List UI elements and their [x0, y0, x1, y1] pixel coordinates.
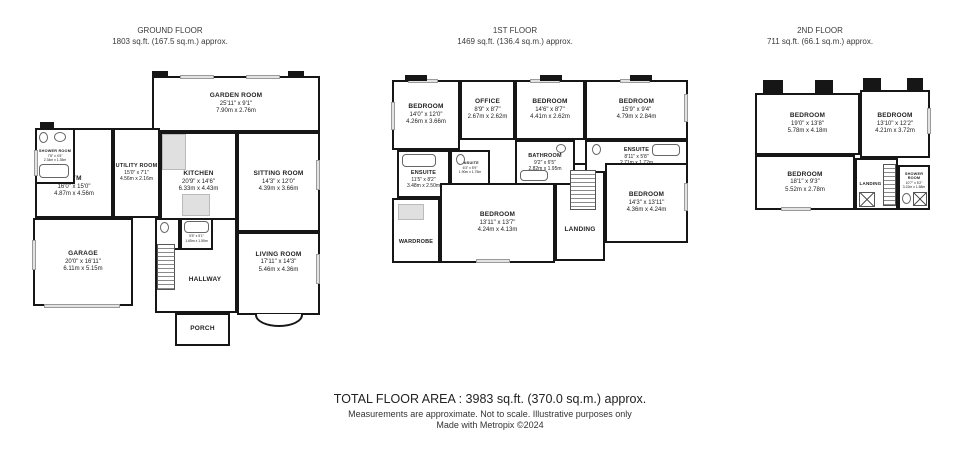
room-dims-m: 4.41m x 2.62m	[530, 114, 570, 122]
room-dims-ft: 20'9" x 14'6"	[179, 179, 219, 187]
bathtub-icon	[520, 170, 548, 181]
room-dims-ft: 14'0" x 12'0"	[406, 112, 446, 120]
room-dims-m: 1.65m x 1.55m	[182, 239, 211, 243]
bathtub-icon	[652, 144, 680, 156]
room-name: KITCHEN	[179, 170, 219, 178]
chimney-block	[907, 78, 923, 90]
room-name: GARAGE	[63, 250, 102, 258]
room-name: SHOWER ROOM	[900, 172, 928, 181]
room-dims-m: 4.79m x 2.84m	[617, 114, 657, 122]
room-dims-ft: 16'0" x 15'0"	[54, 184, 94, 192]
room-dims-ft: 18'1" x 9'3"	[785, 179, 825, 187]
room-name: BEDROOM	[788, 112, 828, 120]
room-name: BEDROOM	[478, 211, 518, 219]
room-bedroom-1f-b: BEDROOM 14'6" x 8'7" 4.41m x 2.62m	[515, 80, 585, 140]
room-bedroom-2f-b: BEDROOM 13'10" x 12'2" 4.21m x 3.72m	[860, 90, 930, 158]
room-name: LANDING	[860, 181, 882, 187]
staircase	[570, 170, 596, 210]
room-dims-m: 7.90m x 2.76m	[210, 108, 262, 116]
toilet-icon	[902, 193, 911, 204]
staircase	[157, 244, 175, 290]
room-porch: PORCH	[175, 313, 230, 346]
room-dims-ft: 8'9" x 8'7"	[468, 107, 508, 115]
room-name: UTILITY ROOM	[116, 163, 158, 170]
storage-hatch	[913, 192, 927, 206]
chimney-block	[288, 71, 304, 77]
chimney-block	[405, 75, 427, 81]
room-living-room: LIVING ROOM 17'11" x 14'3" 5.46m x 4.36m	[237, 232, 320, 315]
shower-tray-icon	[39, 164, 69, 178]
room-dims-m: 6.11m x 5.15m	[63, 266, 102, 274]
room-name: BEDROOM	[875, 112, 915, 120]
shower-tray-icon	[184, 221, 209, 233]
room-dims-m: 5.46m x 4.36m	[256, 267, 302, 275]
room-name: BEDROOM	[617, 98, 657, 106]
room-dims-ft: 13'11" x 13'7"	[478, 220, 518, 228]
room-dims-ft: 17'11" x 14'3"	[256, 259, 302, 267]
ground-floor-header: GROUND FLOOR 1803 sq.ft. (167.5 sq.m.) a…	[70, 26, 270, 48]
room-dims-m: 2.34m x 1.35m	[39, 158, 71, 162]
second-floor-header: 2ND FLOOR 711 sq.ft. (66.1 sq.m.) approx…	[720, 26, 920, 48]
window	[476, 259, 510, 263]
window	[34, 150, 38, 176]
room-name: BEDROOM	[785, 171, 825, 179]
first-floor-title: 1ST FLOOR	[415, 26, 615, 37]
disclaimer: Measurements are approximate. Not to sca…	[0, 409, 980, 419]
chimney-block	[763, 80, 783, 93]
room-bedroom-1f-a: BEDROOM 14'0" x 12'0" 4.26m x 3.66m	[392, 80, 460, 150]
total-floor-area: TOTAL FLOOR AREA : 3983 sq.ft. (370.0 sq…	[0, 392, 980, 406]
room-bedroom-2f-c: BEDROOM 18'1" x 9'3" 5.52m x 2.78m	[755, 155, 855, 210]
ground-floor-area: 1803 sq.ft. (167.5 sq.m.) approx.	[70, 37, 270, 48]
room-dims-m: 4.24m x 4.13m	[478, 227, 518, 235]
room-dims-m: 4.21m x 3.72m	[875, 128, 915, 136]
room-dims-m: 6.33m x 4.43m	[179, 186, 219, 194]
room-office: OFFICE 8'9" x 8'7" 2.67m x 2.62m	[460, 80, 515, 140]
room-name: ENSUITE	[407, 170, 440, 177]
floorplan-canvas: GROUND FLOOR 1803 sq.ft. (167.5 sq.m.) a…	[0, 0, 980, 454]
room-dims-m: 4.87m x 4.56m	[54, 191, 94, 199]
window	[781, 207, 811, 211]
window	[927, 108, 931, 134]
second-floor-plan: BEDROOM 19'0" x 13'8" 5.78m x 4.18m BEDR…	[755, 78, 930, 215]
room-name: LANDING	[564, 226, 595, 234]
room-dims-m: 2.67m x 2.62m	[468, 114, 508, 122]
room-dims-m: 5.52m x 2.78m	[785, 187, 825, 195]
room-dims-m: 3.48m x 2.50m	[407, 183, 440, 189]
room-bedroom-1f-e: BEDROOM 14'3" x 13'11" 4.36m x 4.24m	[605, 163, 688, 243]
room-garden-room: GARDEN ROOM 25'11" x 9'1" 7.90m x 2.76m	[152, 76, 320, 132]
room-dims-ft: 14'3" x 13'11"	[627, 200, 667, 208]
room-name: ENSUITE	[620, 147, 653, 154]
ground-floor-plan: GARDEN ROOM 25'11" x 9'1" 7.90m x 2.76m …	[30, 68, 330, 346]
first-floor-header: 1ST FLOOR 1469 sq.ft. (136.4 sq.m.) appr…	[415, 26, 615, 48]
room-dims-m: 3.22m x 1.58m	[900, 185, 928, 189]
room-garage: GARAGE 20'0" x 16'11" 6.11m x 5.15m	[33, 218, 133, 306]
room-name: LIVING ROOM	[256, 251, 302, 259]
chimney-block	[863, 78, 881, 90]
room-dims-ft: 20'0" x 16'11"	[63, 259, 102, 267]
storage-hatch	[859, 192, 875, 207]
room-name: WARDROBE	[399, 239, 433, 246]
window	[391, 102, 395, 130]
toilet-icon	[39, 132, 48, 143]
room-bedroom-1f-c: BEDROOM 15'9" x 9'4" 4.79m x 2.84m	[585, 80, 688, 140]
room-dims-ft: 15'9" x 9'4"	[617, 107, 657, 115]
kitchen-island	[182, 194, 210, 216]
room-name: BEDROOM	[406, 103, 446, 111]
chimney-block	[630, 75, 652, 81]
first-floor-area: 1469 sq.ft. (136.4 sq.m.) approx.	[415, 37, 615, 48]
toilet-icon	[456, 154, 465, 165]
chimney-block	[815, 80, 833, 93]
room-dims-ft: 25'11" x 9'1"	[210, 101, 262, 109]
room-name: GARDEN ROOM	[210, 92, 262, 100]
room-dims-ft: 19'0" x 13'8"	[788, 121, 828, 129]
chimney-block	[540, 75, 562, 81]
room-dims-m: 1.90m x 1.75m	[459, 170, 481, 174]
room-name: BEDROOM	[530, 98, 570, 106]
first-floor-plan: LANDING BEDROOM 14'0" x 12'0" 4.26m x 3.…	[390, 78, 690, 268]
wardrobe-unit	[398, 204, 424, 220]
room-dims-ft: 14'3" x 12'0"	[253, 179, 303, 187]
second-floor-title: 2ND FLOOR	[720, 26, 920, 37]
staircase	[883, 164, 896, 206]
window	[684, 183, 688, 211]
window	[684, 94, 688, 122]
room-name: BATHROOM	[528, 153, 562, 160]
room-utility: UTILITY ROOM 15'0" x 7'1" 4.56m x 2.16m	[113, 128, 160, 218]
second-floor-area: 711 sq.ft. (66.1 sq.m.) approx.	[720, 37, 920, 48]
room-name: HALLWAY	[189, 276, 222, 284]
bathtub-icon	[402, 154, 436, 167]
sink-icon	[54, 132, 66, 142]
room-dims-m: 5.78m x 4.18m	[788, 128, 828, 136]
chimney-block	[40, 122, 54, 129]
garage-door	[44, 304, 120, 308]
sink-icon	[556, 144, 566, 153]
room-name: OFFICE	[468, 98, 508, 106]
room-bedroom-2f-a: BEDROOM 19'0" x 13'8" 5.78m x 4.18m	[755, 93, 860, 155]
kitchen-counter	[162, 134, 186, 170]
room-name: BEDROOM	[627, 191, 667, 199]
room-name: PORCH	[190, 325, 214, 333]
window	[316, 160, 320, 190]
room-dims-m: 4.26m x 3.66m	[406, 119, 446, 127]
toilet-icon	[160, 222, 169, 233]
credit: Made with Metropix ©2024	[0, 420, 980, 430]
room-dims-m: 4.36m x 4.24m	[627, 207, 667, 215]
room-name: SITTING ROOM	[253, 170, 303, 178]
ground-floor-title: GROUND FLOOR	[70, 26, 270, 37]
window	[32, 240, 36, 270]
room-dims-ft: 14'6" x 8'7"	[530, 107, 570, 115]
footer: TOTAL FLOOR AREA : 3983 sq.ft. (370.0 sq…	[0, 392, 980, 430]
bay-window	[255, 314, 303, 327]
room-bedroom-1f-d: BEDROOM 13'11" x 13'7" 4.24m x 4.13m	[440, 183, 555, 263]
chimney-block	[152, 71, 168, 77]
window	[246, 75, 280, 79]
room-sitting-room: SITTING ROOM 14'3" x 12'0" 4.39m x 3.66m	[237, 132, 320, 232]
room-dims-m: 4.39m x 3.66m	[253, 186, 303, 194]
room-dims-m: 4.56m x 2.16m	[116, 176, 158, 182]
room-dims-ft: 13'10" x 12'2"	[875, 121, 915, 129]
window	[180, 75, 214, 79]
window	[316, 254, 320, 284]
toilet-icon	[592, 144, 601, 155]
